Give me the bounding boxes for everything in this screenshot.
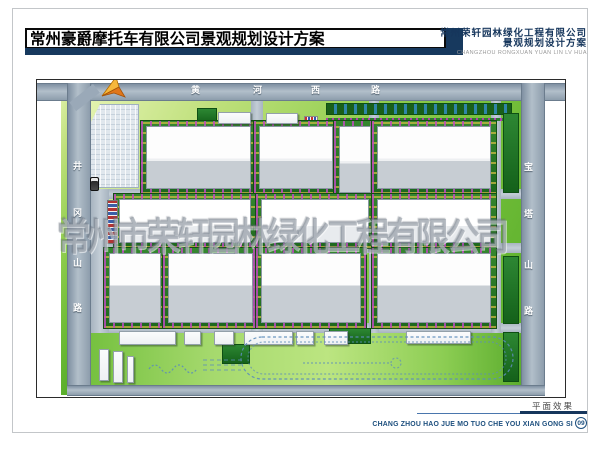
road-name-label: 宝 [524, 163, 533, 172]
building-roof [377, 253, 491, 323]
parked-cars [107, 200, 118, 244]
factory-building [372, 194, 496, 248]
road-name-label: 冈 [73, 209, 82, 218]
building-roof [259, 126, 333, 189]
factory-building [114, 194, 256, 248]
footer-pinyin: CHANG ZHOU HAO JUE MO TUO CHE YOU XIAN G… [373, 419, 573, 428]
road-name-label: 黄 [191, 86, 200, 95]
road-name-label: 井 [73, 162, 82, 171]
building-roof [339, 126, 371, 193]
parking-lot [89, 104, 139, 188]
perimeter-road [67, 385, 545, 396]
footer-divider-thick [520, 411, 587, 414]
page-title: 常州豪爵摩托车有限公司景观规划设计方案 [30, 30, 325, 49]
building-roof [261, 199, 369, 243]
small-building [218, 112, 251, 124]
building-roof [119, 199, 251, 243]
road-name-label: 河 [253, 86, 262, 95]
road-name-label: 西 [311, 86, 320, 95]
factory-building [256, 248, 366, 328]
title-underline-bar [25, 48, 446, 55]
road-name-label: 路 [73, 304, 82, 313]
footer-divider-thin [417, 413, 520, 414]
factory-building [372, 121, 496, 194]
factory-building [254, 121, 338, 194]
perimeter-road [521, 83, 545, 396]
building-roof [168, 253, 253, 323]
road-name-label: 路 [371, 86, 380, 95]
building-roof [377, 199, 491, 243]
page-number-badge: 09 [575, 417, 587, 429]
compass-icon [95, 79, 131, 104]
factory-building [334, 121, 376, 198]
footer-divider [417, 411, 587, 414]
site-plan: 黄河西路井冈山路宝塔山路 [36, 79, 566, 398]
factory-building [104, 248, 166, 328]
factory-building [256, 194, 374, 248]
bus [90, 177, 99, 191]
company-pinyin: CHANGZHOU RONGXUAN YUAN LIN LV HUA [440, 51, 587, 57]
company-header: 常州荣轩园林绿化工程有限公司 景观规划设计方案 CHANGZHOU RONGXU… [440, 29, 587, 57]
building-roof [377, 126, 491, 189]
tree-belt [503, 113, 519, 193]
factory-building [372, 248, 496, 328]
tree-row [326, 103, 512, 115]
building-roof [109, 253, 161, 323]
road-name-label: 山 [73, 259, 82, 268]
footer-pinyin-row: CHANG ZHOU HAO JUE MO TUO CHE YOU XIAN G… [355, 417, 587, 429]
building-roof [146, 126, 251, 189]
road-name-label: 塔 [524, 210, 533, 219]
company-subtitle: 景观规划设计方案 [440, 39, 587, 49]
tree-belt [503, 256, 519, 324]
factory-building [141, 121, 256, 194]
small-building [266, 113, 298, 124]
presentation-sheet: { "header": { "title": "常州豪爵摩托车有限公司景观规划设… [0, 0, 600, 463]
road-name-label: 路 [524, 307, 533, 316]
title-box: 常州豪爵摩托车有限公司景观规划设计方案 [25, 28, 446, 48]
factory-building [163, 248, 258, 328]
test-track [91, 333, 521, 385]
road-name-label: 山 [524, 261, 533, 270]
perimeter-road [67, 83, 91, 396]
building-roof [261, 253, 361, 323]
